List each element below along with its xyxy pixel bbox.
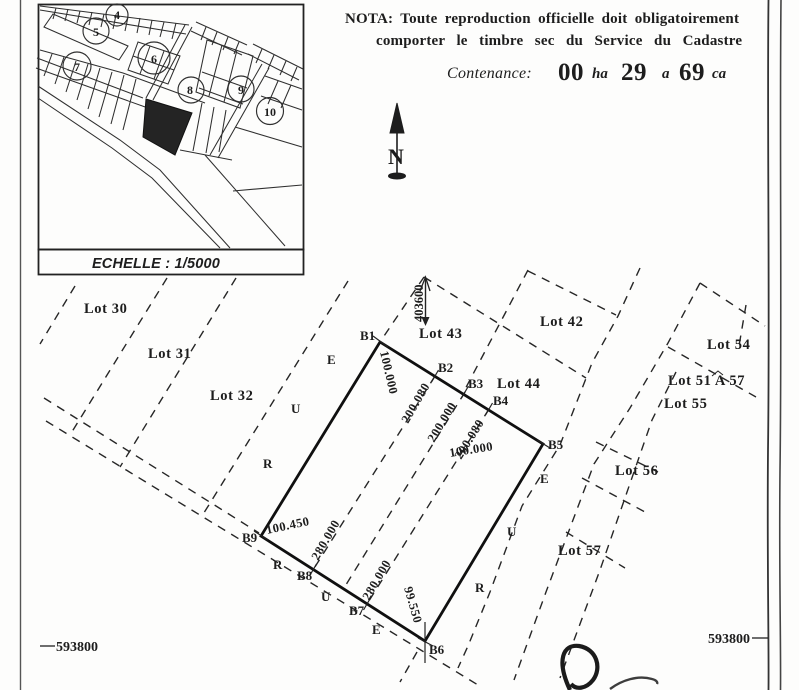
svg-text:593800: 593800 [56, 640, 98, 655]
svg-text:B9: B9 [242, 530, 258, 545]
svg-text:ha: ha [592, 66, 608, 82]
svg-text:N: N [388, 144, 404, 169]
svg-text:R: R [263, 456, 273, 471]
svg-text:Lot 55: Lot 55 [664, 396, 707, 412]
svg-text:Lot 42: Lot 42 [540, 314, 583, 330]
svg-text:E: E [540, 471, 549, 486]
svg-text:U: U [291, 401, 301, 416]
svg-text:8: 8 [187, 83, 193, 97]
svg-text:comporter le timbre sec du Ser: comporter le timbre sec du Service du Ca… [376, 33, 742, 49]
svg-text:6: 6 [151, 52, 157, 66]
svg-text:Lot 32: Lot 32 [210, 388, 253, 404]
svg-text:Lot 44: Lot 44 [497, 376, 540, 392]
svg-text:B2: B2 [438, 360, 453, 375]
svg-text:69: 69 [679, 59, 705, 86]
svg-text:Lot 57: Lot 57 [558, 543, 601, 559]
svg-text:5: 5 [93, 25, 99, 39]
svg-text:Lot 54: Lot 54 [707, 337, 750, 353]
svg-text:a: a [662, 66, 670, 82]
svg-text:4: 4 [114, 8, 120, 22]
svg-text:Lot 30: Lot 30 [84, 301, 127, 317]
svg-text:00: 00 [558, 59, 584, 86]
svg-text:U: U [507, 524, 517, 539]
svg-text:Lot 31: Lot 31 [148, 346, 191, 362]
svg-text:29: 29 [621, 59, 647, 86]
svg-text:B1: B1 [360, 328, 375, 343]
svg-text:E: E [327, 352, 336, 367]
svg-text:Lot 43: Lot 43 [419, 326, 462, 342]
svg-text:B7: B7 [349, 603, 365, 618]
svg-text:R: R [273, 557, 283, 572]
svg-text:B4: B4 [493, 393, 509, 408]
svg-text:593800: 593800 [708, 632, 750, 647]
svg-text:B8: B8 [297, 568, 313, 583]
svg-text:7: 7 [74, 60, 80, 74]
svg-text:R: R [475, 580, 485, 595]
svg-text:U: U [321, 589, 331, 604]
svg-text:B3: B3 [468, 376, 484, 391]
svg-text:E: E [372, 622, 381, 637]
svg-text:9: 9 [238, 83, 244, 97]
svg-text:NOTA: Toute reproduction offic: NOTA: Toute reproduction officielle doit… [345, 11, 739, 27]
svg-text:Lot 51 A 57: Lot 51 A 57 [668, 373, 745, 389]
svg-text:10: 10 [264, 105, 276, 119]
svg-text:403600: 403600 [412, 285, 426, 323]
svg-text:B5: B5 [548, 437, 564, 452]
svg-text:ca: ca [712, 66, 727, 82]
svg-text:B6: B6 [429, 642, 445, 657]
svg-text:Lot 56: Lot 56 [615, 463, 658, 479]
svg-text:Contenance:: Contenance: [447, 65, 532, 82]
svg-text:ECHELLE : 1/5000: ECHELLE : 1/5000 [92, 256, 220, 272]
